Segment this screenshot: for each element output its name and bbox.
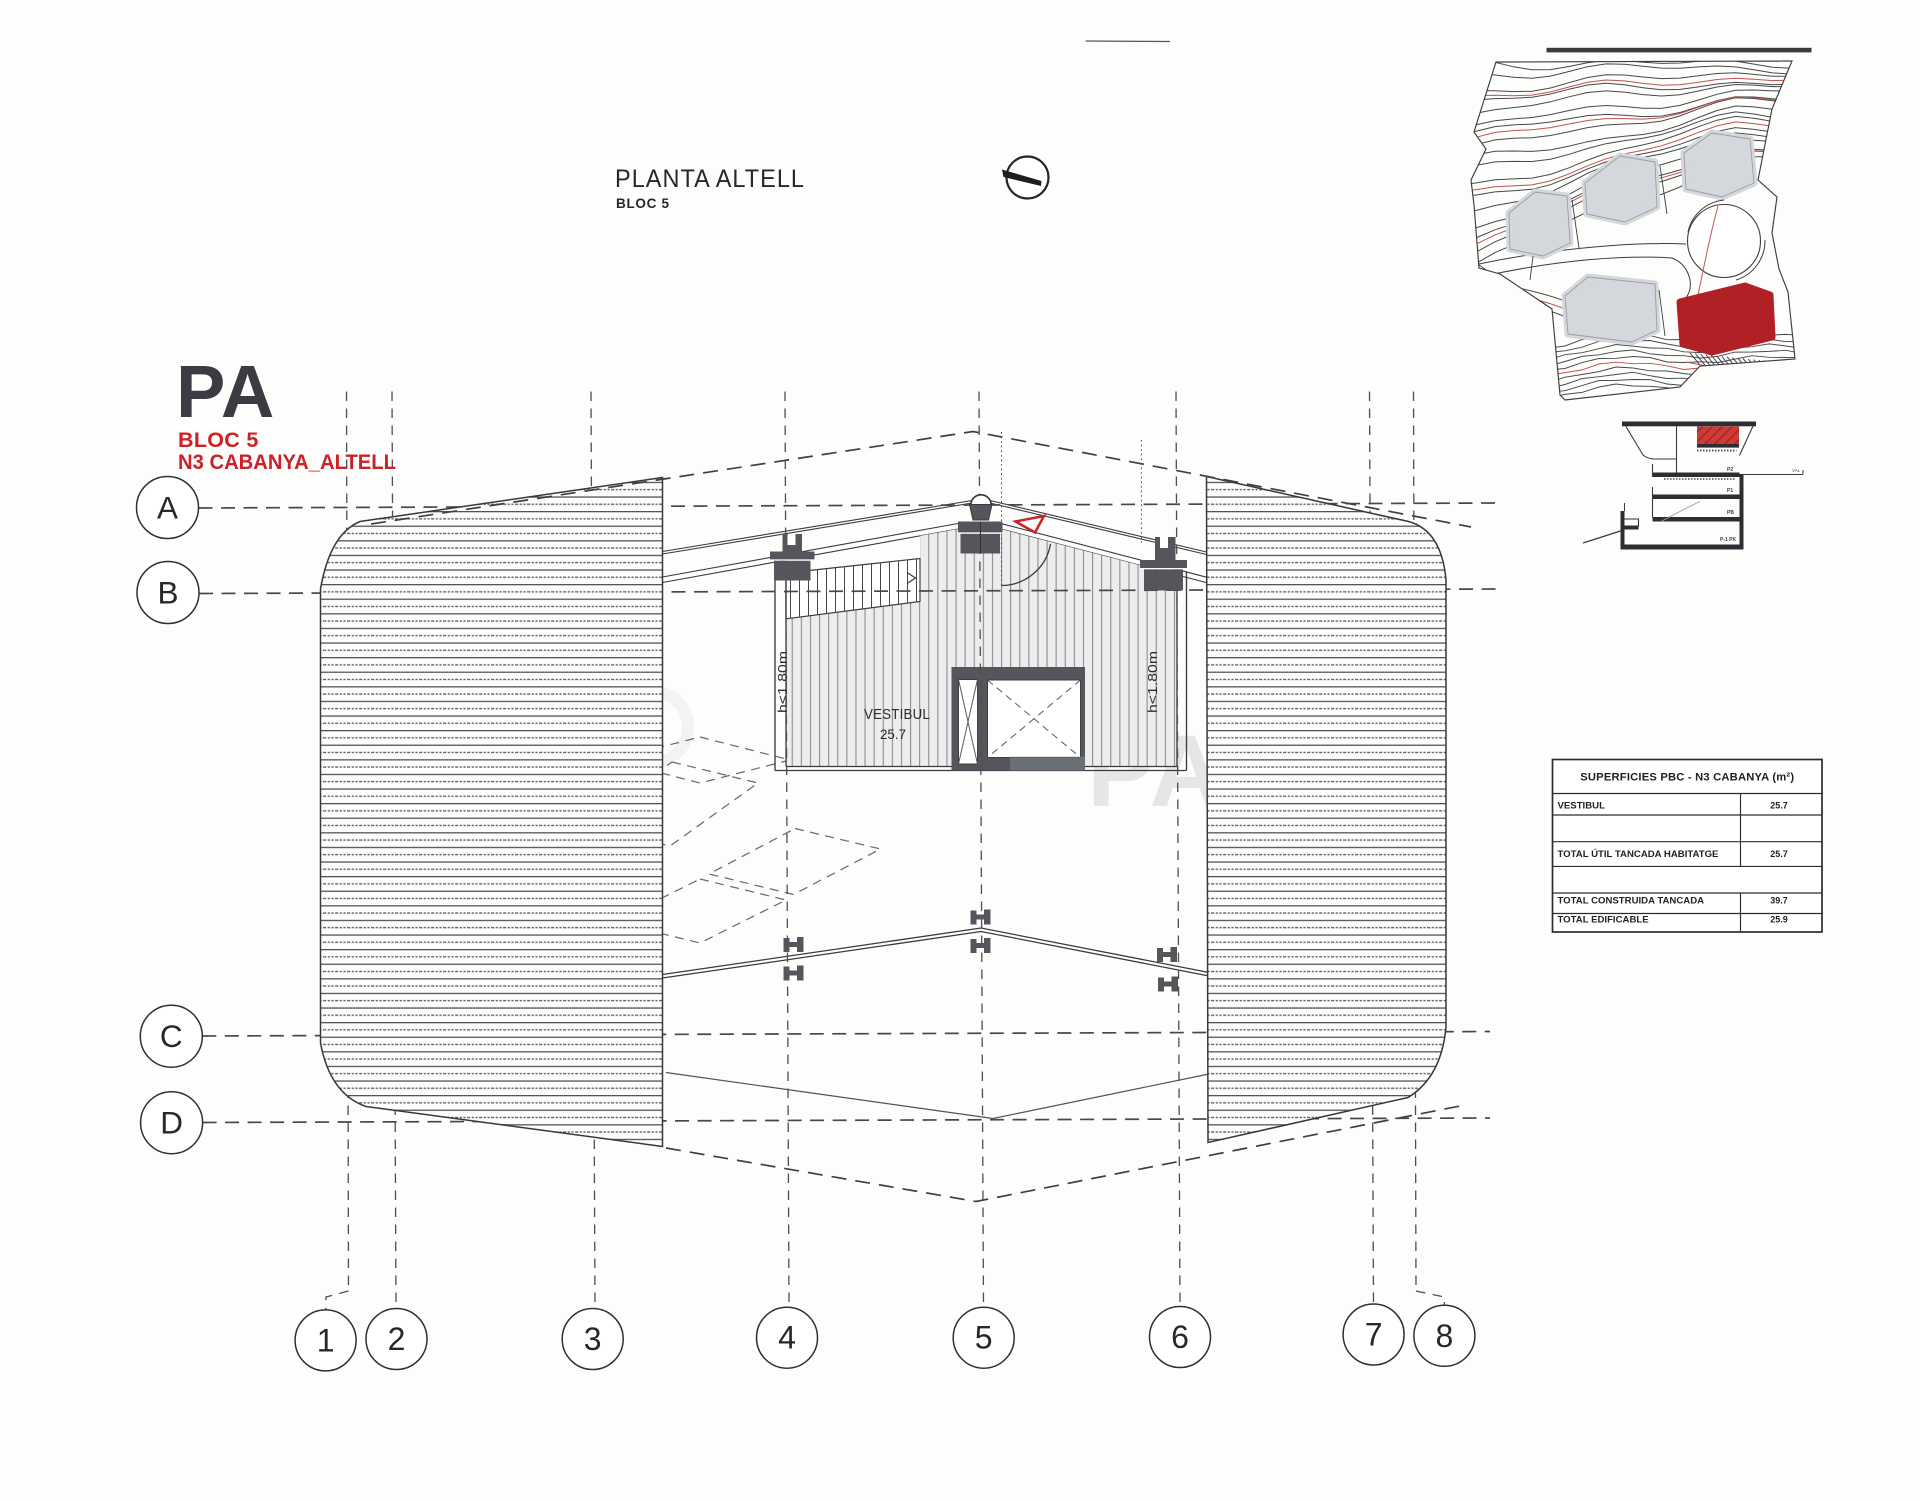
svg-text:PLANTA ALTELL: PLANTA ALTELL bbox=[615, 165, 805, 193]
svg-text:SUPERFICIES PBC - N3 CABANYA (: SUPERFICIES PBC - N3 CABANYA (m²) bbox=[1580, 772, 1794, 784]
svg-text:BLOC 5: BLOC 5 bbox=[178, 428, 259, 452]
svg-text:6: 6 bbox=[1171, 1319, 1189, 1355]
svg-text:PB: PB bbox=[1727, 510, 1734, 516]
svg-text:25.7: 25.7 bbox=[1770, 849, 1788, 859]
svg-text:h<1.80m: h<1.80m bbox=[1145, 651, 1160, 713]
svg-text:P1: P1 bbox=[1727, 488, 1733, 494]
svg-text:D: D bbox=[160, 1105, 183, 1141]
svg-text:PA: PA bbox=[176, 350, 275, 433]
svg-text:39.7: 39.7 bbox=[1770, 896, 1788, 906]
svg-text:VESTIBUL: VESTIBUL bbox=[864, 706, 930, 723]
svg-text:P-1 PK: P-1 PK bbox=[1720, 537, 1737, 543]
svg-text:VESTIBUL: VESTIBUL bbox=[1558, 801, 1606, 812]
svg-text:3: 3 bbox=[584, 1321, 602, 1357]
svg-text:1: 1 bbox=[317, 1322, 335, 1358]
svg-text:h<1.80m: h<1.80m bbox=[775, 651, 790, 713]
svg-text:TOTAL ÚTIL TANCADA HABITATGE: TOTAL ÚTIL TANCADA HABITATGE bbox=[1558, 848, 1720, 860]
svg-text:TOTAL CONSTRUIDA TANCADA: TOTAL CONSTRUIDA TANCADA bbox=[1558, 896, 1705, 907]
svg-text:25.7: 25.7 bbox=[880, 727, 906, 742]
svg-text:A: A bbox=[157, 490, 178, 526]
svg-text:25.9: 25.9 bbox=[1770, 915, 1788, 925]
svg-text:VAL: VAL bbox=[1792, 468, 1801, 473]
svg-text:BLOC 5: BLOC 5 bbox=[616, 196, 670, 211]
svg-text:C: C bbox=[160, 1018, 183, 1054]
svg-text:P2: P2 bbox=[1727, 467, 1733, 473]
svg-text:TOTAL EDIFICABLE: TOTAL EDIFICABLE bbox=[1558, 915, 1650, 926]
svg-text:B: B bbox=[157, 575, 178, 611]
svg-text:5: 5 bbox=[975, 1320, 993, 1356]
svg-text:8: 8 bbox=[1436, 1318, 1454, 1354]
svg-text:2: 2 bbox=[388, 1321, 406, 1357]
svg-text:25.7: 25.7 bbox=[1770, 801, 1788, 811]
svg-text:4: 4 bbox=[778, 1320, 796, 1356]
svg-text:N3 CABANYA_ALTELL: N3 CABANYA_ALTELL bbox=[178, 451, 396, 474]
svg-text:7: 7 bbox=[1365, 1317, 1383, 1353]
